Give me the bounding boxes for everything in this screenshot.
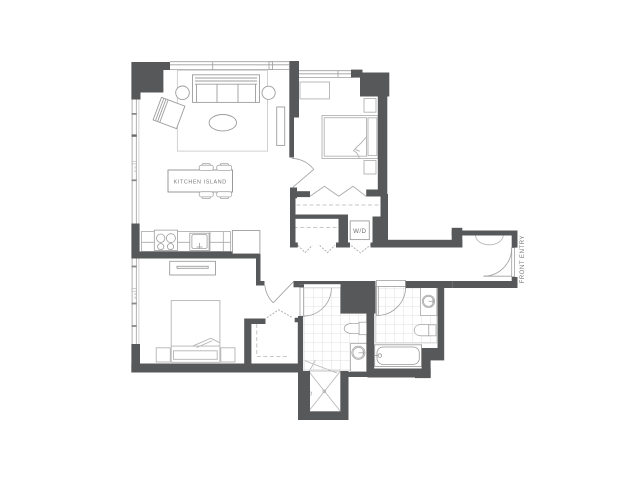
svg-text:FRONT ENTRY: FRONT ENTRY: [519, 235, 526, 283]
svg-text:W/D: W/D: [353, 228, 366, 235]
svg-text:KITCHEN ISLAND: KITCHEN ISLAND: [174, 179, 227, 185]
